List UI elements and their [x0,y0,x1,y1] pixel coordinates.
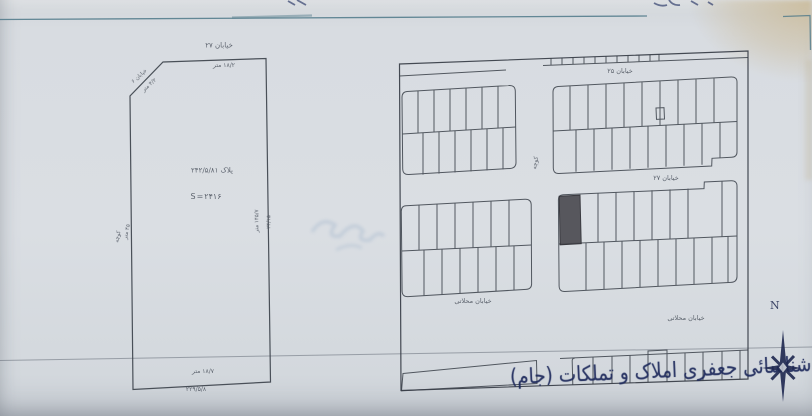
label-east-length-outer: ۲۴/۱۵ [267,215,273,229]
compass-north-label: N [770,299,780,312]
plan-linework [0,0,812,416]
left-parcel-outline [130,59,271,390]
sheet-frame-line [0,16,811,51]
top-edge-ink-fragments [288,0,713,6]
faint-ink-smudge [312,222,384,250]
highlighted-lot [559,195,581,245]
label-plot-number: پلاک ۲۴۲/۵/۸۱ [191,168,233,175]
label-street-25: خیابان ۲۵ [607,68,633,75]
label-street-27-right: خیابان ۲۷ [653,175,679,182]
scanned-survey-sheet: خیابان ۲۷ ۱۸/۲ متر خیابان ۶ ۴/۲ متر پلاک… [0,0,812,416]
label-top-length: ۱۸/۲ متر [213,63,235,69]
label-bottom-length-outer: ۲۲۹/۵/۸ [186,387,206,393]
label-east-length-inner: ۱۴۵/۷ متر [255,209,261,232]
handwritten-stamp: شناسائی جعفری املاک و تملکات (جام) [566,352,812,415]
label-street-27-left: خیابان ۲۷ [205,43,233,50]
label-parcel-area: S=۲۴۱۶ [191,193,222,201]
label-bottom-length-inner: ۱۸/۷ متر [192,369,214,375]
label-street-mahallati-b: خیابان محلاتی [667,315,704,322]
label-street-mahallati-a: خیابان محلاتی [454,298,491,305]
